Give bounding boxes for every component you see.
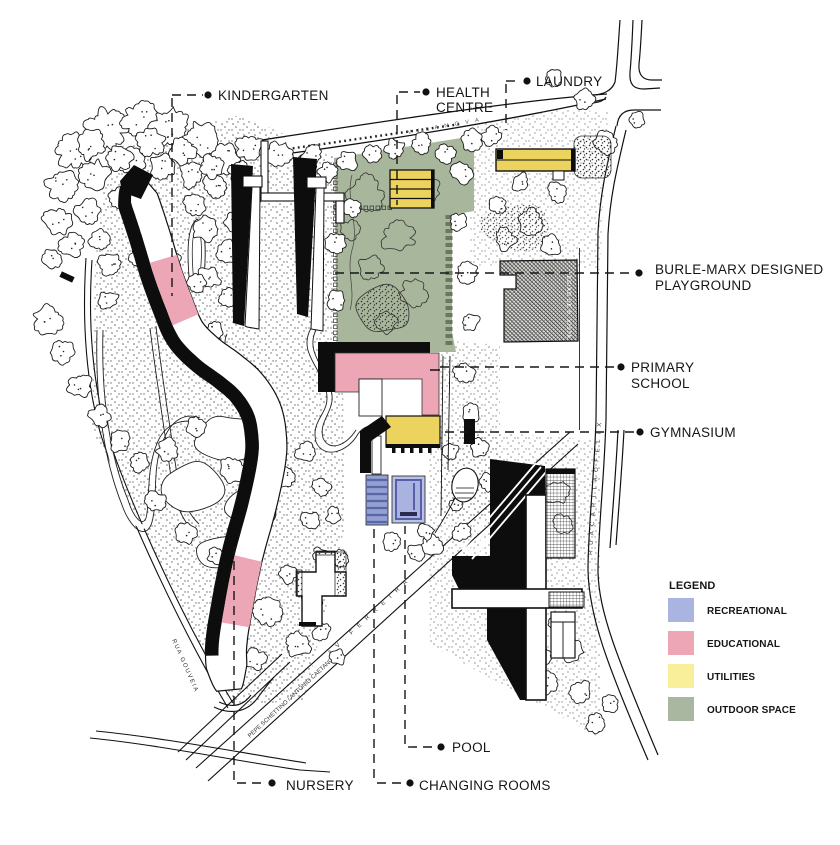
svg-text:LEGEND: LEGEND xyxy=(669,580,715,592)
svg-text:BURLE-MARX DESIGNED: BURLE-MARX DESIGNED xyxy=(655,262,823,277)
svg-text:PLAYGROUND: PLAYGROUND xyxy=(655,278,752,293)
svg-text:CHANGING ROOMS: CHANGING ROOMS xyxy=(419,778,551,793)
svg-text:LEGIAO DE B. VISTA: LEGIAO DE B. VISTA xyxy=(565,272,571,339)
svg-text:UTILITIES: UTILITIES xyxy=(707,672,755,683)
svg-text:OUTDOOR SPACE: OUTDOOR SPACE xyxy=(707,705,796,716)
svg-text:POOL: POOL xyxy=(452,740,491,755)
svg-text:SCHOOL: SCHOOL xyxy=(631,376,690,391)
svg-text:PRIMARY: PRIMARY xyxy=(631,360,694,375)
svg-text:HEALTH: HEALTH xyxy=(436,85,490,100)
svg-text:LAUNDRY: LAUNDRY xyxy=(536,74,602,89)
svg-text:RECREATIONAL: RECREATIONAL xyxy=(707,606,787,617)
svg-text:KINDERGARTEN: KINDERGARTEN xyxy=(218,88,329,103)
svg-text:CENTRE: CENTRE xyxy=(436,100,493,115)
svg-text:EDUCATIONAL: EDUCATIONAL xyxy=(707,639,780,650)
svg-text:NURSERY: NURSERY xyxy=(286,778,354,793)
svg-text:GYMNASIUM: GYMNASIUM xyxy=(650,425,736,440)
